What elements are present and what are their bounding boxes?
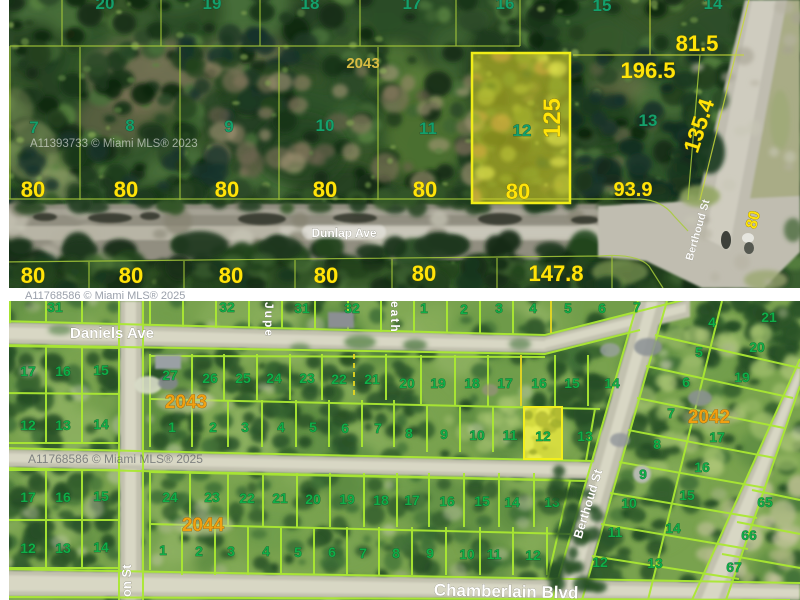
svg-text:3: 3 — [241, 419, 249, 435]
svg-text:5: 5 — [564, 300, 572, 316]
svg-text:2043: 2043 — [346, 55, 379, 72]
svg-text:22: 22 — [331, 371, 347, 387]
svg-text:80: 80 — [21, 177, 45, 202]
svg-text:147.8: 147.8 — [528, 261, 583, 286]
svg-text:2043: 2043 — [165, 392, 207, 413]
svg-text:1: 1 — [168, 419, 176, 435]
svg-text:19: 19 — [203, 0, 222, 13]
svg-text:20: 20 — [96, 0, 115, 13]
svg-text:4: 4 — [277, 419, 285, 435]
svg-text:20: 20 — [749, 339, 765, 355]
svg-text:12: 12 — [535, 428, 551, 444]
svg-text:9: 9 — [426, 545, 434, 561]
svg-text:4: 4 — [708, 314, 716, 330]
svg-text:12: 12 — [513, 121, 532, 140]
svg-text:15: 15 — [93, 488, 109, 504]
svg-text:13: 13 — [55, 417, 71, 433]
svg-text:12: 12 — [20, 417, 36, 433]
svg-text:66: 66 — [741, 527, 757, 543]
svg-text:8: 8 — [125, 116, 134, 135]
svg-text:A11393733 © Miami MLS® 2023: A11393733 © Miami MLS® 2023 — [30, 138, 198, 150]
svg-text:13: 13 — [55, 540, 71, 556]
svg-text:17: 17 — [709, 429, 725, 445]
svg-text:23: 23 — [204, 489, 220, 505]
svg-text:65: 65 — [757, 494, 773, 510]
svg-text:24: 24 — [266, 370, 282, 386]
svg-text:4: 4 — [529, 300, 537, 316]
svg-text:32: 32 — [219, 299, 235, 315]
svg-text:10: 10 — [316, 116, 335, 135]
svg-text:3: 3 — [495, 300, 503, 316]
svg-text:21: 21 — [364, 371, 380, 387]
svg-text:15: 15 — [93, 362, 109, 378]
svg-text:11: 11 — [608, 524, 623, 540]
svg-text:15: 15 — [593, 0, 612, 15]
svg-text:125: 125 — [539, 98, 566, 138]
svg-text:10: 10 — [621, 495, 637, 511]
svg-text:80: 80 — [114, 177, 138, 202]
svg-text:13: 13 — [639, 111, 658, 130]
svg-text:19: 19 — [339, 491, 355, 507]
svg-text:2: 2 — [460, 301, 468, 317]
svg-text:27: 27 — [162, 367, 178, 383]
svg-text:9: 9 — [224, 117, 233, 136]
svg-text:11: 11 — [419, 119, 437, 138]
svg-text:eath: eath — [388, 301, 402, 334]
svg-text:6: 6 — [341, 420, 349, 436]
svg-text:17: 17 — [20, 363, 36, 379]
svg-text:26: 26 — [202, 370, 218, 386]
svg-text:14: 14 — [504, 494, 520, 510]
svg-text:7: 7 — [29, 118, 38, 137]
svg-text:80: 80 — [413, 177, 437, 202]
svg-text:22: 22 — [239, 490, 255, 506]
svg-text:14: 14 — [93, 539, 109, 555]
svg-text:14: 14 — [704, 0, 723, 13]
svg-text:8: 8 — [392, 545, 400, 561]
svg-text:6: 6 — [682, 374, 690, 390]
svg-text:19: 19 — [734, 369, 750, 385]
svg-text:14: 14 — [665, 520, 681, 536]
svg-text:7: 7 — [667, 405, 675, 421]
svg-text:67: 67 — [726, 559, 742, 575]
svg-text:2042: 2042 — [688, 407, 730, 428]
svg-text:11: 11 — [503, 427, 518, 443]
svg-text:21: 21 — [761, 309, 777, 325]
svg-text:25: 25 — [235, 370, 251, 386]
svg-text:8: 8 — [405, 425, 413, 441]
svg-text:16: 16 — [531, 375, 547, 391]
svg-text:18: 18 — [301, 0, 320, 13]
svg-text:A11768586 © Miami MLS® 2025: A11768586 © Miami MLS® 2025 — [25, 290, 185, 302]
svg-text:24: 24 — [162, 489, 178, 505]
svg-text:14: 14 — [93, 416, 109, 432]
svg-text:17: 17 — [20, 489, 36, 505]
svg-text:196.5: 196.5 — [620, 58, 675, 83]
svg-text:12: 12 — [592, 554, 608, 570]
svg-text:9: 9 — [639, 466, 647, 482]
svg-text:12: 12 — [525, 547, 541, 563]
svg-text:19: 19 — [430, 375, 446, 391]
svg-text:10: 10 — [469, 427, 485, 443]
svg-text:18: 18 — [464, 375, 480, 391]
svg-text:2044: 2044 — [182, 515, 225, 536]
svg-text:32: 32 — [344, 300, 360, 316]
svg-text:23: 23 — [299, 370, 315, 386]
svg-text:80: 80 — [219, 263, 243, 288]
svg-text:Jupe: Jupe — [262, 302, 276, 338]
svg-text:17: 17 — [403, 0, 422, 13]
svg-text:7: 7 — [633, 299, 641, 315]
svg-text:5: 5 — [294, 544, 302, 560]
svg-text:16: 16 — [694, 459, 710, 475]
svg-text:16: 16 — [55, 363, 71, 379]
svg-text:7: 7 — [359, 545, 367, 561]
svg-text:13: 13 — [577, 428, 593, 444]
svg-text:13: 13 — [647, 555, 663, 571]
svg-text:31: 31 — [294, 300, 310, 316]
svg-text:3: 3 — [227, 543, 235, 559]
svg-text:Daniels Ave: Daniels Ave — [70, 325, 154, 342]
svg-text:16: 16 — [55, 489, 71, 505]
svg-text:on St: on St — [119, 564, 134, 597]
svg-text:Dunlap Ave: Dunlap Ave — [311, 226, 376, 240]
svg-text:16: 16 — [439, 493, 455, 509]
svg-text:20: 20 — [399, 375, 415, 391]
svg-text:A11768586 © Miami MLS® 2025: A11768586 © Miami MLS® 2025 — [28, 452, 203, 466]
svg-text:93.9: 93.9 — [614, 179, 653, 201]
svg-text:17: 17 — [404, 492, 420, 508]
svg-text:15: 15 — [564, 375, 580, 391]
svg-text:2: 2 — [209, 419, 217, 435]
svg-text:10: 10 — [459, 546, 475, 562]
svg-text:20: 20 — [305, 491, 321, 507]
svg-text:6: 6 — [598, 300, 606, 316]
svg-text:80: 80 — [314, 263, 338, 288]
svg-text:1: 1 — [159, 542, 167, 558]
svg-text:80: 80 — [21, 263, 45, 288]
svg-text:18: 18 — [373, 492, 389, 508]
svg-text:17: 17 — [497, 375, 513, 391]
svg-text:9: 9 — [440, 426, 448, 442]
svg-text:80: 80 — [215, 177, 239, 202]
svg-text:5: 5 — [695, 344, 703, 360]
svg-text:8: 8 — [653, 436, 661, 452]
svg-text:12: 12 — [20, 540, 36, 556]
svg-text:6: 6 — [328, 544, 336, 560]
svg-text:11: 11 — [487, 546, 502, 562]
svg-text:1: 1 — [420, 300, 428, 316]
svg-text:2: 2 — [195, 543, 203, 559]
svg-text:80: 80 — [412, 261, 436, 286]
svg-text:15: 15 — [474, 493, 490, 509]
svg-text:21: 21 — [272, 490, 288, 506]
svg-text:5: 5 — [309, 419, 317, 435]
svg-text:4: 4 — [262, 543, 270, 559]
svg-text:14: 14 — [604, 375, 620, 391]
svg-text:80: 80 — [506, 179, 530, 204]
svg-text:15: 15 — [679, 487, 695, 503]
svg-text:7: 7 — [374, 420, 382, 436]
svg-text:16: 16 — [496, 0, 515, 13]
svg-text:Chamberlain Blvd: Chamberlain Blvd — [434, 580, 579, 600]
svg-text:80: 80 — [313, 177, 337, 202]
svg-text:81.5: 81.5 — [676, 31, 719, 56]
svg-text:80: 80 — [119, 263, 143, 288]
